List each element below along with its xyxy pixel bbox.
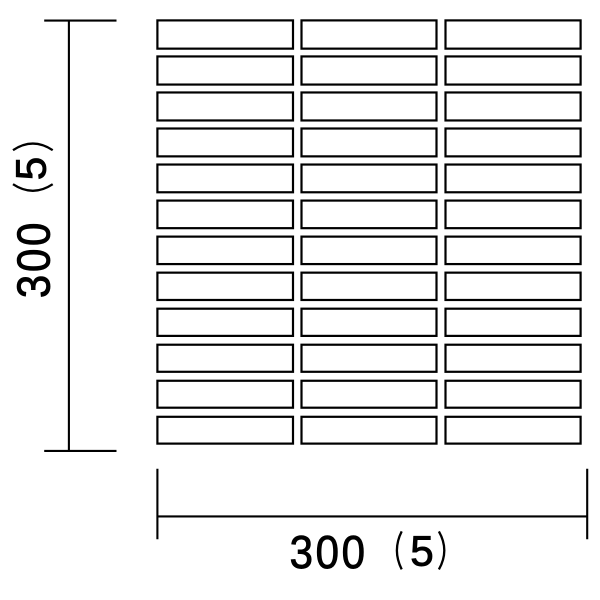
svg-text:300: 300 (290, 527, 368, 578)
svg-text:300: 300 (9, 220, 60, 298)
svg-text:5: 5 (8, 157, 55, 180)
svg-text:5: 5 (410, 528, 433, 575)
